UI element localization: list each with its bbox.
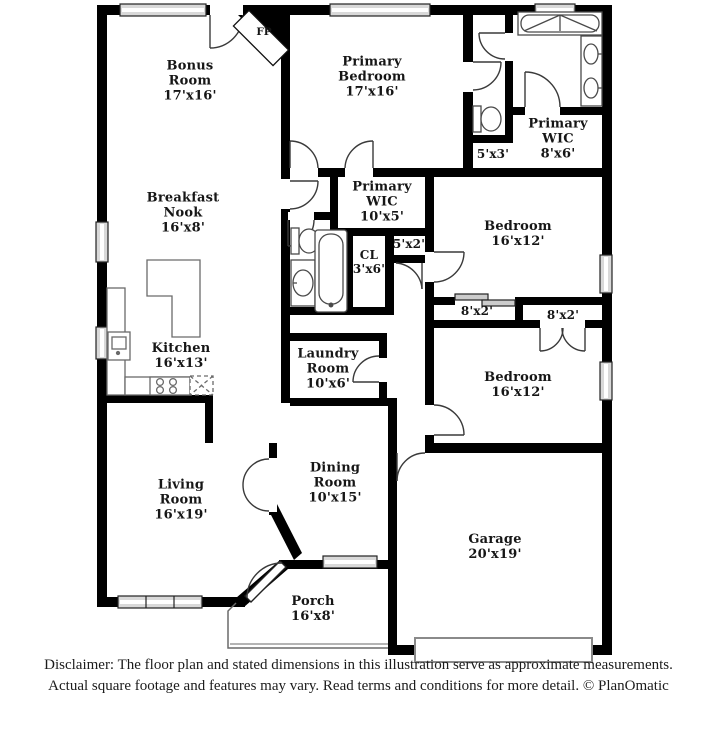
toilet-icon-wc <box>473 106 501 132</box>
wall-wic-left <box>330 177 338 236</box>
refrigerator-icon <box>190 376 213 395</box>
disclaimer-text: Disclaimer: The floor plan and stated di… <box>0 655 717 697</box>
room-label-hall-closet: CL 3'x6' <box>348 249 390 277</box>
closet-lower-dims-label: 8'x2' <box>538 309 588 323</box>
wall-garage-top <box>397 443 602 453</box>
closet-upper-dims-label: 8'x2' <box>452 305 502 319</box>
linen-closet-dims-label: 5'x2' <box>384 238 434 252</box>
room-label-garage: Garage 20'x19' <box>450 533 540 563</box>
door-primary-bedroom-hall <box>290 141 318 168</box>
door-primary-bedroom-wic <box>345 141 373 168</box>
wall-bedrooms-top <box>281 168 602 177</box>
door-garage-entry <box>397 453 425 481</box>
fireplace-label: FP <box>249 26 279 38</box>
door-closet-double-left <box>540 328 563 351</box>
room-label-kitchen: Kitchen 16'x13' <box>136 342 226 372</box>
door-water-closet <box>479 33 505 59</box>
wall-dining-diagonal <box>269 504 302 560</box>
window-kitchen-left <box>96 327 108 359</box>
disclaimer-line-2: Actual square footage and features may v… <box>0 676 717 697</box>
shower-icon <box>518 12 602 35</box>
room-label-bedroom-lower: Bedroom 16'x12' <box>468 371 568 401</box>
room-label-dining-room: Dining Room 10'x15' <box>305 462 365 507</box>
door-bedroom-lower <box>434 405 464 435</box>
room-label-laundry: Laundry Room 10'x6' <box>293 348 363 393</box>
window-bonus-top <box>120 4 206 16</box>
room-label-porch: Porch 16'x8' <box>268 595 358 625</box>
door-french-living-dining <box>243 459 269 511</box>
stove-icon <box>150 377 190 395</box>
bathtub-icon <box>315 230 347 312</box>
room-label-bonus-room: Bonus Room 17'x16' <box>155 60 225 105</box>
window-bedroom-lower-right <box>600 362 612 400</box>
wall-linen-bottom <box>385 255 430 263</box>
door-bedroom-upper <box>434 252 464 282</box>
window-breakfast-left <box>96 222 108 262</box>
water-closet-dims-label: 5'x3' <box>468 148 518 162</box>
room-label-primary-bedroom: Primary Bedroom 17'x16' <box>332 56 412 101</box>
window-porch-front <box>323 556 377 568</box>
wall-kitchen-stub <box>205 395 213 443</box>
doors <box>210 15 585 602</box>
wall-wc-bottom <box>463 135 513 143</box>
kitchen-island <box>147 260 200 337</box>
sink-icon-bath <box>291 260 315 306</box>
wall-left <box>97 5 107 607</box>
room-label-primary-wic-lower: Primary WIC 10'x5' <box>347 181 417 226</box>
door-closet-double-right <box>562 328 585 351</box>
disclaimer-line-1: Disclaimer: The floor plan and stated di… <box>0 655 717 676</box>
wall-laundry-top <box>281 333 387 341</box>
door-primary-wic-upper <box>525 72 560 107</box>
window-primary-top <box>330 4 430 16</box>
door-primary-bath <box>473 62 501 90</box>
wall-kitchen-bottom <box>107 395 213 403</box>
room-label-bedroom-upper: Bedroom 16'x12' <box>468 220 568 250</box>
kitchen-sink-icon <box>108 332 130 360</box>
window-bedroom-upper-right <box>600 255 612 293</box>
floor-plan-page: FP Bonus Room 17'x16' Primary Bedroom 17… <box>0 0 717 731</box>
room-label-breakfast-nook: Breakfast Nook 16'x8' <box>143 192 223 237</box>
door-linen-closet <box>396 263 422 289</box>
wall-right <box>602 5 612 655</box>
room-label-primary-wic-upper: Primary WIC 8'x6' <box>523 118 593 163</box>
window-living-bottom <box>118 596 202 608</box>
room-label-living-room: Living Room 16'x19' <box>151 479 211 524</box>
door-breakfast-vestibule <box>290 181 318 209</box>
wall-garage-left <box>388 398 397 655</box>
double-sink-vanity-icon <box>581 36 602 106</box>
